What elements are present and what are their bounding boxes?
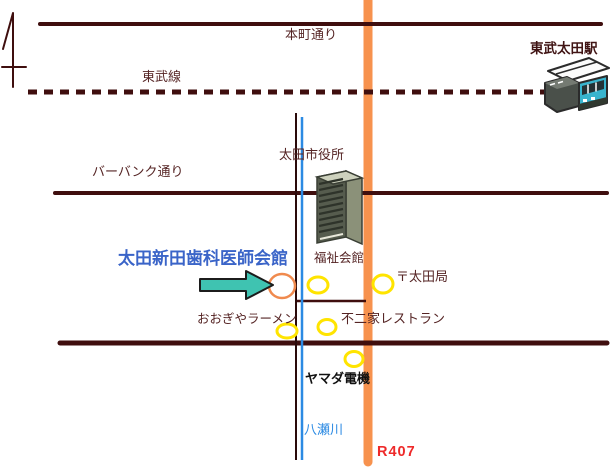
poi-circle-yamada-denki: [345, 352, 363, 367]
label-oogiya-ramen: おおぎやラーメン: [197, 312, 297, 326]
label-tobu-ota-station: 東武太田駅: [530, 41, 598, 57]
label-fujiya-restaurant: 不二家レストラン: [341, 312, 445, 327]
label-yase-river: 八瀬川: [304, 423, 343, 438]
label-dental-hall: 太田新田歯科医師会館: [118, 249, 288, 269]
label-r407: R407: [377, 444, 416, 461]
station-icon: [545, 58, 609, 112]
label-honcho-street: 本町通り: [285, 28, 337, 43]
direction-arrow-icon: [200, 271, 273, 299]
label-ota-post-office: 〒太田局: [396, 270, 448, 285]
label-fukushi-kaikan: 福祉会館: [314, 251, 364, 265]
poi-circle-post-office: [373, 275, 393, 293]
label-ota-city-hall: 太田市役所: [279, 148, 344, 163]
city-hall-building-icon: [317, 171, 362, 244]
poi-circle-fukushi-kaikan: [308, 277, 328, 293]
guide-map: 本町通り 東武線 東武太田駅 太田市役所 バーバンク通り 太田新田歯科医師会館 …: [0, 0, 610, 471]
label-burbank-street: バーバンク通り: [92, 165, 184, 180]
label-tobu-line: 東武線: [142, 70, 181, 85]
poi-circle-fujiya-restaurant: [318, 320, 336, 335]
map-canvas: [0, 0, 610, 471]
label-yamada-denki: ヤマダ電機: [305, 372, 370, 387]
north-arrow-icon: [2, 13, 26, 87]
